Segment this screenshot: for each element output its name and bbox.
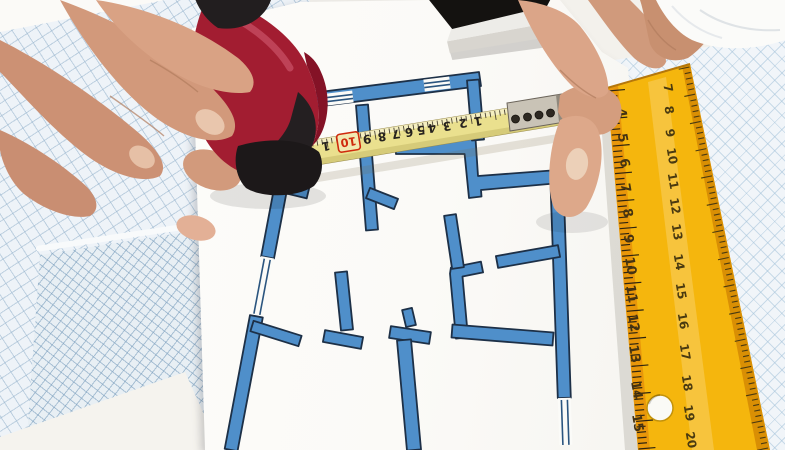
ruler-number: 20 (683, 431, 700, 450)
tape-number-highlight: 10 (339, 134, 357, 150)
ruler-number: 19 (681, 404, 698, 423)
tape-hook-rivet (524, 113, 532, 121)
ruler-number: 12 (624, 313, 642, 333)
wall-connector-vertical (444, 214, 464, 269)
ruler-number: 15 (673, 282, 690, 301)
wall-t2-vertical (397, 339, 421, 450)
tape-measure-blade: 2 1 10 9 8 7 6 5 4 3 2 1 (297, 94, 567, 184)
wall-t1-vertical (335, 271, 353, 330)
ruler-number: 15 (628, 413, 646, 433)
tape-hook-rivet (547, 109, 555, 117)
wall-closet-top (496, 245, 560, 268)
wall-t1-base (323, 330, 363, 349)
ruler-number: 16 (675, 312, 692, 331)
tape-hook-rivet (512, 115, 520, 123)
window-left-wall (250, 256, 274, 317)
wall-t2-top-stub (402, 308, 416, 327)
ruler-number: 10 (621, 256, 639, 276)
photo-measuring-floor-plan: 4 5 6 7 8 9 10 11 12 13 14 15 7 8 9 10 1… (0, 0, 785, 450)
left-fingertip-on-paper (174, 211, 219, 245)
wall-closet-bottom (452, 325, 554, 346)
ruler-number: 14 (627, 380, 645, 400)
ruler-number: 18 (679, 374, 696, 393)
ruler-number: 17 (677, 343, 694, 362)
tape-hook-rivet (535, 111, 543, 119)
ruler-number: 13 (625, 344, 643, 364)
wall-left-exterior-lower (225, 315, 263, 450)
ruler-number: 14 (671, 253, 688, 272)
tape-body-black-base (236, 140, 322, 195)
ruler-number: 11 (622, 284, 640, 304)
scene-overlay: 4 5 6 7 8 9 10 11 12 13 14 15 7 8 9 10 1… (0, 0, 785, 450)
window-right-wall (558, 398, 573, 445)
ruler-number: 12 (667, 197, 684, 216)
ruler-number: 11 (665, 172, 682, 191)
ruler-number: 13 (669, 223, 686, 242)
ruler-number: 10 (664, 147, 681, 166)
ruler: 4 5 6 7 8 9 10 11 12 13 14 15 7 8 9 10 1… (599, 64, 770, 450)
